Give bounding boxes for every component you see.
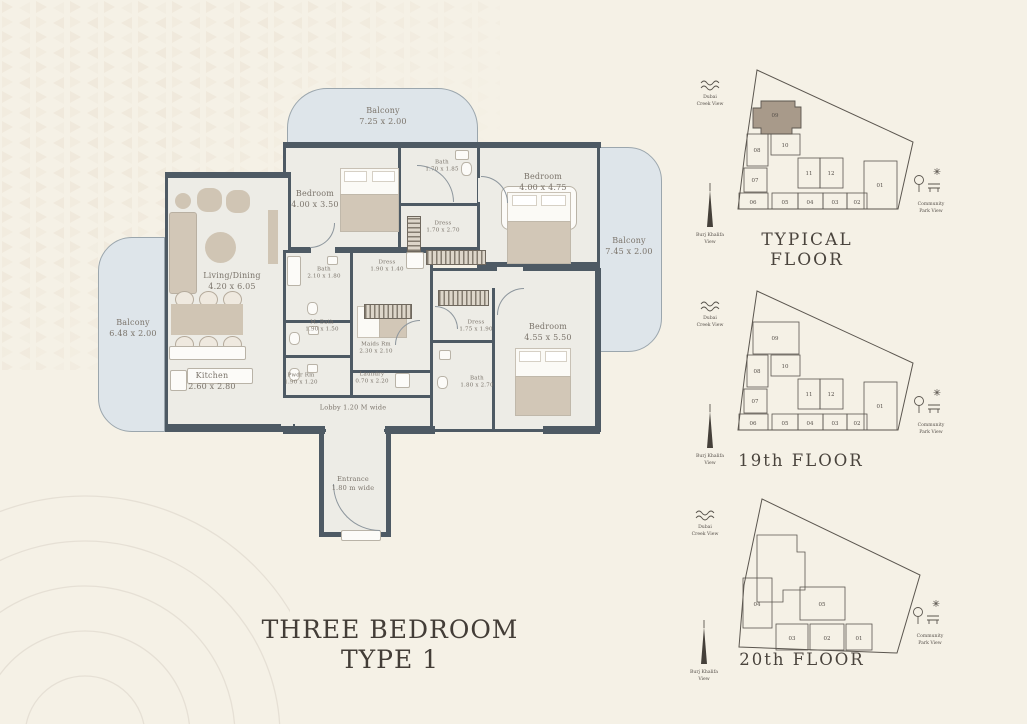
blanket (340, 194, 399, 232)
view-label: Community (917, 633, 944, 639)
view-label: Burj Khalifa (696, 232, 724, 238)
bed-bedroom3 (515, 348, 571, 416)
label-bath-top: Bath1.70 x 1.85 (425, 160, 458, 175)
label-dress-mid: Dress1.90 x 1.40 (370, 260, 403, 275)
park-icon (915, 168, 941, 192)
bathtub (287, 256, 301, 286)
unit-label: 01 (877, 404, 884, 410)
unit-label: 08 (754, 148, 761, 154)
opening-bedroom3-door (497, 267, 523, 274)
dining-table (171, 304, 243, 335)
burj-khalifa-icon (707, 404, 713, 448)
plan-title: THREE BEDROOM TYPE 1 (262, 615, 519, 674)
keyplan-title-19th: 19th FLOOR (716, 451, 886, 470)
bed-bedroom2 (507, 192, 571, 264)
unit-label: 09 (772, 336, 779, 342)
plan-title-line2: TYPE 1 (262, 645, 519, 675)
unit-label: 07 (752, 178, 759, 184)
view-label: Park View (919, 208, 942, 214)
wardrobe (438, 290, 489, 306)
label-balcony-right: Balcony7.45 x 2.00 (605, 236, 652, 258)
label-dress-top: Dress1.70 x 2.70 (426, 221, 459, 236)
view-label: Dubai (703, 315, 717, 321)
unit-label: 02 (824, 636, 831, 642)
unit-label: 08 (754, 369, 761, 375)
rug (205, 232, 236, 263)
burj-khalifa-icon (707, 183, 713, 227)
unit-label: 12 (828, 392, 835, 398)
unit-label: 04 (807, 200, 814, 206)
bed-bedroom1 (340, 168, 399, 232)
keyplan-typical-floor: 09 10 08 07 06 05 04 03 02 01 11 12 Duba… (695, 57, 945, 255)
unit-label: 10 (782, 143, 789, 149)
unit-label: 06 (750, 421, 757, 427)
waves-icon (701, 302, 719, 311)
pillow (541, 195, 566, 206)
unit-label: 03 (832, 200, 839, 206)
view-label: Creek View (697, 101, 724, 107)
washer (395, 373, 410, 388)
label-bedroom2: Bedroom4.00 x 4.75 (519, 172, 566, 194)
wall-right (595, 268, 601, 432)
wall-bottom-mid (385, 426, 435, 434)
unit-label: 03 (789, 636, 796, 642)
armchair (197, 188, 222, 212)
wall-bottom-left (283, 426, 325, 434)
partition-dress-bath-right (432, 340, 492, 343)
label-pwdr-room: Pwdr Rm1.90 x 1.20 (284, 373, 317, 388)
shaft (406, 252, 424, 269)
sink (327, 256, 338, 265)
unit-label: 06 (750, 200, 757, 206)
unit-label: 03 (832, 421, 839, 427)
pillow (344, 171, 367, 182)
keyplan-19th-floor: 09 10 08 07 06 05 04 03 02 01 11 12 Duba… (695, 278, 945, 476)
entrance-threshold (341, 530, 381, 541)
brochure-page: Balcony7.25 x 2.00 Balcony7.45 x 2.00 Ba… (0, 0, 1027, 724)
unit-label: 05 (782, 421, 789, 427)
opening-lobby-entrance (326, 427, 384, 435)
blanket (507, 221, 571, 264)
unit-label: 11 (806, 392, 813, 398)
view-label: Creek View (697, 322, 724, 328)
pillow (372, 171, 395, 182)
partition-bath-dress (401, 203, 480, 206)
sofa (169, 212, 197, 294)
view-label: Park View (919, 429, 942, 435)
burj-khalifa-icon (701, 620, 707, 664)
label-balcony-top: Balcony7.25 x 2.00 (359, 106, 406, 128)
toilet (461, 162, 472, 176)
label-bath-right: Bath1.80 x 2.70 (460, 376, 493, 391)
plan-title-line1: THREE BEDROOM (262, 615, 519, 645)
park-icon (915, 389, 941, 413)
wall-living-top (165, 172, 291, 178)
view-label: Community (918, 422, 945, 428)
sink (455, 150, 469, 160)
side-table (175, 193, 191, 209)
unit-label: 11 (806, 171, 813, 177)
view-label: Burj Khalifa (690, 669, 718, 675)
unit-label: 07 (752, 399, 759, 405)
pillow (512, 195, 537, 206)
view-label: Dubai (703, 94, 717, 100)
toilet (307, 302, 318, 315)
view-label: View (703, 239, 715, 245)
label-lobby: Lobby 1.20 M wide (320, 404, 387, 413)
opening-living-lobby (281, 398, 293, 426)
floor-plan: Balcony7.25 x 2.00 Balcony7.45 x 2.00 Ba… (95, 80, 675, 560)
kitchen-appliance (170, 370, 187, 391)
view-label: View (703, 460, 715, 466)
label-entrance: Entrance1.80 m wide (332, 475, 375, 493)
unit-label: 12 (828, 171, 835, 177)
label-dress-right: Dress1.75 x 1.90 (459, 320, 492, 335)
park-icon (914, 600, 940, 624)
view-label: Park View (918, 640, 941, 646)
label-laundry: Laundry0.70 x 2.20 (355, 372, 388, 387)
label-living-dining: Living/Dining4.20 x 6.05 (203, 271, 260, 293)
wardrobe (364, 304, 412, 319)
unit-label: 01 (877, 183, 884, 189)
view-label: Dubai (698, 524, 712, 530)
sink (439, 350, 451, 360)
view-label: View (697, 676, 709, 682)
waves-icon (696, 511, 714, 520)
label-bedroom3: Bedroom4.55 x 5.50 (524, 322, 571, 344)
unit-label: 04 (754, 602, 761, 608)
wall-bottom-right (543, 426, 600, 434)
label-bedroom1: Bedroom4.00 x 3.50 (291, 189, 338, 211)
unit-label: 05 (782, 200, 789, 206)
unit-label: 09 (772, 113, 779, 119)
opening-bedroom1-door (311, 247, 335, 254)
tv-console (268, 210, 278, 264)
unit-label: 05 (819, 602, 826, 608)
pillow (545, 351, 567, 362)
wardrobe (407, 216, 421, 252)
label-m-bath: M. Bath1.90 x 1.50 (305, 320, 338, 335)
keyplan-title-typical: TYPICAL FLOOR (722, 230, 892, 270)
wall-living-bottom (165, 424, 295, 432)
keyplan-title-20th: 20th FLOOR (717, 650, 887, 669)
partition-mbath-pwdr (283, 355, 350, 358)
view-label: Community (918, 201, 945, 207)
wardrobe (426, 250, 486, 265)
partition-service-col (350, 250, 353, 395)
unit-label: 04 (807, 421, 814, 427)
unit-label: 02 (854, 200, 861, 206)
partition-dress-bedroom3 (492, 288, 495, 432)
wall-top (283, 142, 601, 148)
label-maids-room: Maids Rm2.30 x 2.10 (359, 342, 392, 357)
kitchen-counter (169, 346, 246, 360)
toilet (437, 376, 448, 389)
partition-lobby (283, 395, 433, 398)
toilet (289, 332, 300, 345)
pillow (519, 351, 541, 362)
unit-label: 02 (854, 421, 861, 427)
waves-icon (701, 81, 719, 90)
unit-label: 10 (782, 364, 789, 370)
unit-label: 01 (856, 636, 863, 642)
label-bath-mid: Bath2.10 x 1.80 (307, 267, 340, 282)
view-label: Creek View (692, 531, 719, 537)
armchair (226, 190, 250, 213)
label-balcony-left: Balcony6.48 x 2.00 (109, 318, 156, 340)
blanket (515, 376, 571, 416)
label-kitchen: Kitchen2.60 x 2.80 (188, 371, 235, 393)
